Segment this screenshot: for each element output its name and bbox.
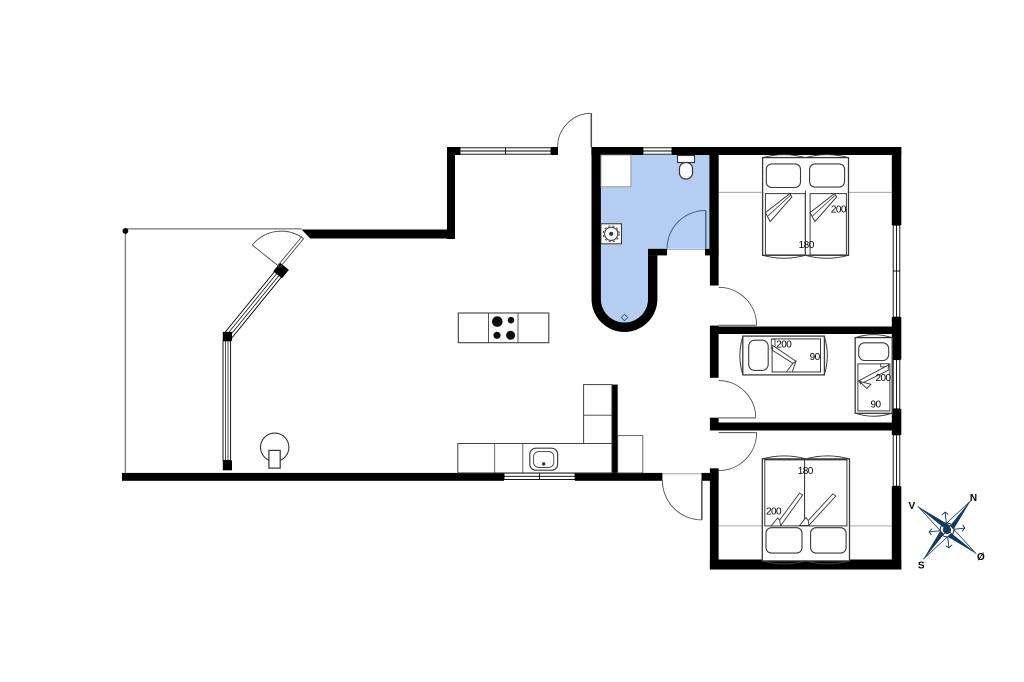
svg-text:180: 180 [798,466,814,477]
svg-text:V: V [908,501,915,512]
svg-text:200: 200 [831,205,847,216]
svg-text:200: 200 [766,507,782,518]
svg-text:S: S [918,560,925,571]
svg-text:N: N [970,493,977,504]
svg-text:Ø: Ø [977,552,985,563]
svg-text:180: 180 [799,240,815,251]
svg-text:90: 90 [810,352,821,363]
svg-text:90: 90 [870,400,881,411]
svg-text:200: 200 [875,373,891,384]
svg-text:200: 200 [776,339,792,350]
